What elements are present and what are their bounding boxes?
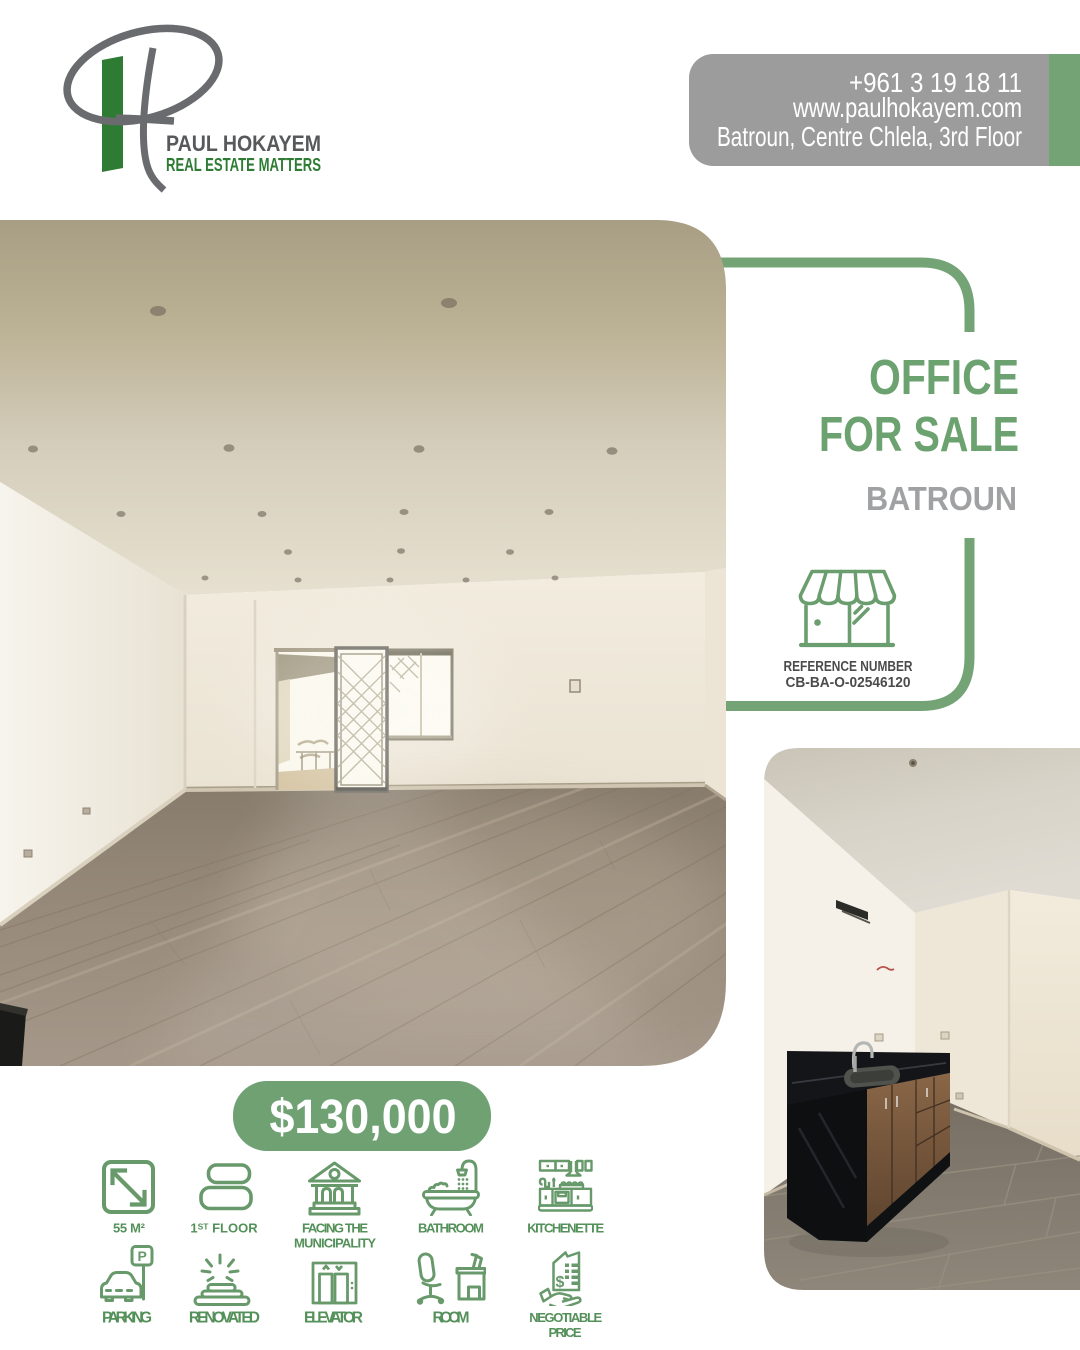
svg-text:OFFICE: OFFICE: [869, 351, 1019, 405]
svg-text:REFERENCE NUMBER: REFERENCE NUMBER: [784, 659, 913, 675]
svg-text:$130,000: $130,000: [270, 1091, 457, 1144]
svg-text:BATROUN: BATROUN: [866, 480, 1017, 517]
svg-text:BATHROOM: BATHROOM: [418, 1220, 484, 1235]
svg-text:55 M²: 55 M²: [113, 1220, 146, 1235]
svg-text:FACING THE: FACING THE: [302, 1220, 368, 1235]
svg-text:MUNICIPALITY: MUNICIPALITY: [294, 1236, 376, 1251]
svg-text:ROOM: ROOM: [433, 1310, 470, 1327]
svg-text:1ST FLOOR: 1ST FLOOR: [190, 1220, 258, 1235]
svg-text:PARKING: PARKING: [102, 1310, 152, 1327]
svg-text:NEGOTIABLE: NEGOTIABLE: [529, 1310, 602, 1325]
svg-text:RENOVATED: RENOVATED: [189, 1310, 260, 1327]
svg-text:CB-BA-O-02546120: CB-BA-O-02546120: [786, 675, 911, 691]
svg-text:KITCHENETTE: KITCHENETTE: [527, 1220, 604, 1235]
svg-text:FOR SALE: FOR SALE: [819, 408, 1019, 462]
svg-text:ELEVATOR: ELEVATOR: [304, 1310, 363, 1327]
svg-text:PRICE: PRICE: [549, 1325, 582, 1340]
